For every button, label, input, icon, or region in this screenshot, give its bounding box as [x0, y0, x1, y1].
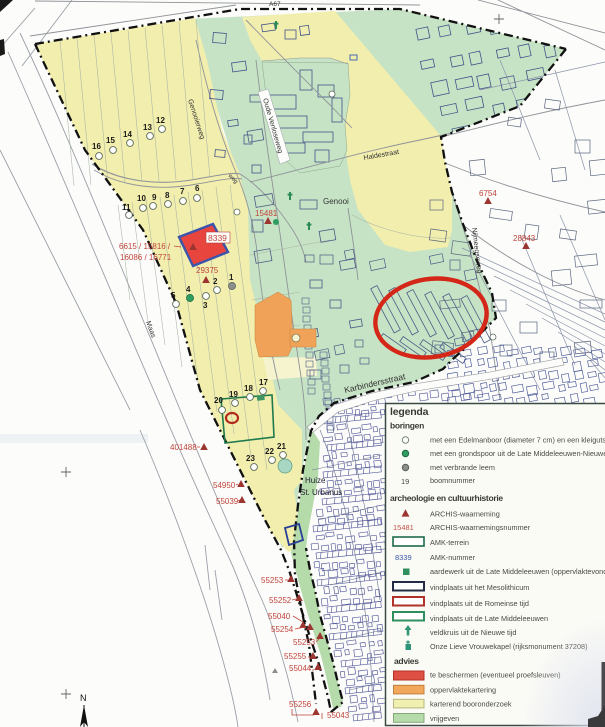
svg-text:14: 14 [123, 130, 132, 139]
svg-text:N: N [80, 693, 87, 703]
svg-text:ARCHIS-waarneming: ARCHIS-waarneming [430, 510, 500, 519]
svg-text:legenda: legenda [390, 406, 429, 418]
svg-text:A67: A67 [269, 1, 281, 8]
svg-text:6754: 6754 [479, 189, 497, 198]
svg-text:55252: 55252 [269, 596, 292, 605]
svg-text:16: 16 [92, 142, 101, 151]
svg-text:archeologie en cultuurhistorie: archeologie en cultuurhistorie [390, 493, 503, 503]
svg-text:23: 23 [246, 454, 255, 463]
svg-text:met verbrande leem: met verbrande leem [430, 463, 495, 472]
svg-text:29375: 29375 [196, 266, 219, 275]
svg-text:AMK-nummer: AMK-nummer [430, 553, 476, 562]
svg-text:veldkruis uit de Nieuwe tijd: veldkruis uit de Nieuwe tijd [430, 628, 516, 637]
svg-text:22: 22 [265, 447, 274, 456]
svg-text:28843: 28843 [513, 234, 536, 243]
svg-text:vrijgeven: vrijgeven [430, 714, 459, 723]
svg-text:10: 10 [137, 194, 146, 203]
svg-text:St. Urbanus: St. Urbanus [300, 488, 342, 497]
svg-text:19: 19 [401, 477, 409, 486]
svg-text:55256: 55256 [289, 700, 312, 709]
svg-text:20: 20 [214, 396, 223, 405]
svg-text:55040: 55040 [268, 612, 291, 621]
svg-text:vindplaats uit het Mesolithicu: vindplaats uit het Mesolithicum [430, 583, 529, 592]
svg-text:6615 / 15816 /: 6615 / 15816 / [119, 242, 171, 251]
svg-text:11: 11 [122, 203, 131, 212]
svg-text:401488: 401488 [170, 443, 197, 452]
svg-text:vindplaats uit de Romeinse tij: vindplaats uit de Romeinse tijd [430, 599, 529, 608]
svg-text:aardewerk uit de Late Middelee: aardewerk uit de Late Middeleeuwen (oppe… [430, 567, 605, 576]
svg-text:16086 / 16771: 16086 / 16771 [120, 253, 172, 262]
svg-text:8: 8 [165, 191, 170, 200]
svg-text:2: 2 [213, 277, 218, 286]
svg-text:55253: 55253 [293, 638, 316, 647]
svg-text:55254: 55254 [271, 625, 294, 634]
svg-text:karterend booronderzoek: karterend booronderzoek [430, 700, 512, 709]
svg-text:6: 6 [195, 184, 200, 193]
svg-text:Genooi: Genooi [323, 197, 349, 206]
svg-text:21: 21 [277, 442, 286, 451]
svg-text:13: 13 [143, 123, 152, 132]
svg-text:7: 7 [180, 187, 185, 196]
svg-text:met een Edelmanboor (diameter: met een Edelmanboor (diameter 7 cm) en e… [430, 436, 605, 445]
svg-text:AMK-terrein: AMK-terrein [430, 538, 469, 547]
svg-text:Huize: Huize [305, 476, 326, 485]
svg-text:12: 12 [156, 116, 165, 125]
svg-text:1: 1 [229, 273, 234, 282]
svg-text:advies: advies [394, 656, 419, 666]
svg-text:boringen: boringen [390, 421, 424, 431]
svg-text:55043: 55043 [327, 711, 350, 720]
svg-text:18: 18 [244, 384, 253, 393]
svg-text:boomnummer: boomnummer [430, 476, 476, 485]
svg-text:17: 17 [259, 378, 268, 387]
svg-text:5: 5 [171, 291, 176, 300]
svg-text:4: 4 [186, 285, 191, 294]
svg-text:3: 3 [203, 301, 208, 310]
svg-text:met een grondspoor uit de Late: met een grondspoor uit de Late Middeleeu… [430, 449, 605, 458]
svg-text:54950: 54950 [213, 481, 236, 490]
svg-text:8339: 8339 [208, 233, 227, 243]
svg-text:15481: 15481 [393, 523, 414, 532]
svg-text:oppervlaktekartering: oppervlaktekartering [430, 685, 496, 694]
svg-text:9: 9 [152, 193, 157, 202]
svg-text:15: 15 [106, 136, 115, 145]
svg-text:55044: 55044 [289, 664, 312, 673]
svg-text:15481: 15481 [255, 209, 278, 218]
svg-text:55039: 55039 [216, 497, 239, 506]
svg-text:55255: 55255 [284, 652, 307, 661]
svg-text:55253: 55253 [261, 576, 284, 585]
svg-text:ARCHIS-waarnemingsnummer: ARCHIS-waarnemingsnummer [430, 523, 531, 532]
svg-text:19: 19 [229, 390, 238, 399]
svg-text:8339: 8339 [395, 553, 412, 562]
